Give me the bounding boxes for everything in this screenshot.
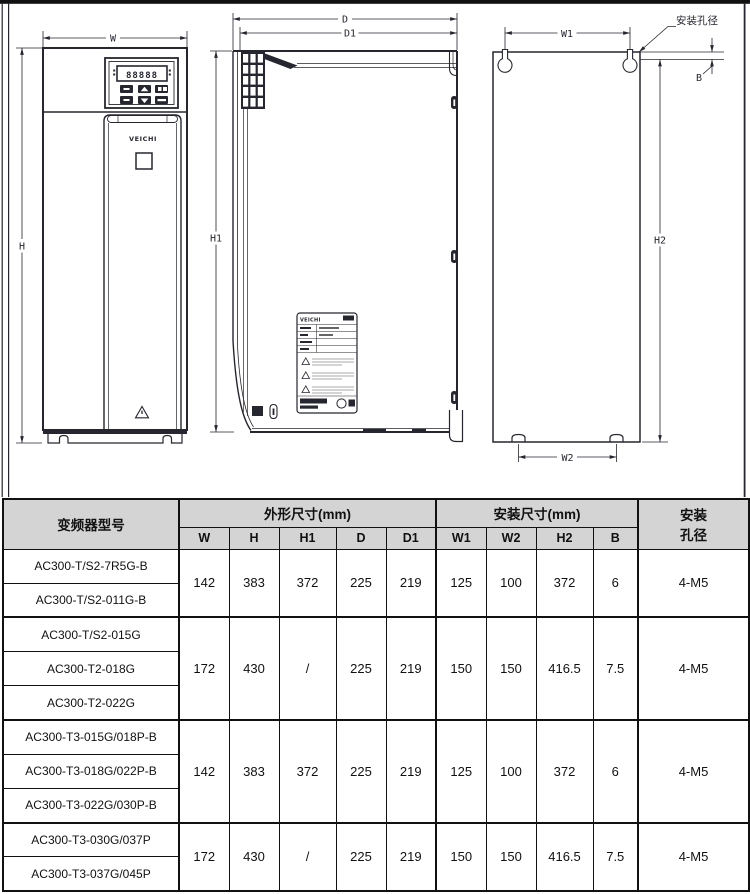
dim-cell: 150 (436, 617, 486, 720)
dim-cell: 372 (279, 549, 336, 617)
header-model: 变频器型号 (3, 499, 179, 549)
dim-cell: 416.5 (536, 617, 593, 720)
model-cell: AC300-T2-018G (3, 652, 179, 686)
header-outline-group: 外形尺寸(mm) (179, 499, 436, 527)
dim-cell: 430 (229, 617, 279, 720)
header-mount-group: 安装尺寸(mm) (436, 499, 638, 527)
dim-cell: / (279, 823, 336, 892)
model-cell: AC300-T3-022G/030P-B (3, 788, 179, 822)
dim-label-w1: W1 (561, 29, 573, 40)
header-col-h1: H1 (279, 527, 336, 549)
dim-cell: 142 (179, 720, 229, 823)
mounting-keyhole (623, 50, 637, 73)
dim-cell: 430 (229, 823, 279, 892)
dim-label-w: W (110, 34, 117, 45)
mounting-notch (512, 435, 525, 443)
dimension-drawings: W H 88888 (0, 0, 750, 497)
dimension-table: 变频器型号 外形尺寸(mm) 安装尺寸(mm) 安装 孔径 W H H1 D D… (2, 498, 750, 892)
model-cell: AC300-T3-015G/018P-B (3, 720, 179, 754)
header-col-d: D (336, 527, 386, 549)
dim-cell: 225 (336, 823, 386, 892)
dim-label-h: H (19, 242, 25, 253)
dim-cell: 225 (336, 617, 386, 720)
hole-cell: 4-M5 (638, 720, 749, 823)
mounting-notch (610, 435, 623, 443)
model-cell: AC300-T/S2-7R5G-B (3, 549, 179, 583)
dim-label-w2: W2 (561, 453, 573, 464)
dim-cell: 150 (436, 823, 486, 892)
dim-cell: 150 (486, 617, 536, 720)
dim-cell: 142 (179, 549, 229, 617)
dim-cell: 219 (386, 823, 436, 892)
dim-cell: 219 (386, 617, 436, 720)
dim-cell: 225 (336, 720, 386, 823)
hole-cell: 4-M5 (638, 549, 749, 617)
dim-cell: 383 (229, 549, 279, 617)
mounting-keyhole (498, 50, 512, 73)
header-col-b: B (593, 527, 638, 549)
keypad-panel: 88888 (105, 58, 178, 108)
nameplate-label: VEICHI (297, 313, 357, 413)
dim-label-d1: D1 (344, 29, 356, 40)
model-cell: AC300-T/S2-015G (3, 617, 179, 651)
vent-grille (241, 52, 298, 109)
dim-cell: 100 (486, 720, 536, 823)
header-col-d1: D1 (386, 527, 436, 549)
dim-label-d: D (342, 15, 348, 26)
dim-cell: 125 (436, 720, 486, 823)
dim-cell: 372 (279, 720, 336, 823)
mounting-hole-note: 安装孔径 (676, 14, 718, 27)
manual-page: W H 88888 (0, 0, 750, 894)
dim-cell: / (279, 617, 336, 720)
warning-triangle-icon (136, 407, 149, 418)
dim-cell: 172 (179, 617, 229, 720)
header-hole: 安装 孔径 (638, 499, 749, 549)
back-view-drawing: W1 安装孔径 B H2 W2 (493, 14, 724, 464)
dim-cell: 100 (486, 549, 536, 617)
brand-label: VEICHI (129, 135, 157, 143)
dim-cell: 172 (179, 823, 229, 892)
dim-cell: 416.5 (536, 823, 593, 892)
dim-cell: 372 (536, 720, 593, 823)
display-value: 88888 (126, 71, 158, 81)
dim-cell: 383 (229, 720, 279, 823)
header-col-w2: W2 (486, 527, 536, 549)
dim-cell: 6 (593, 549, 638, 617)
hole-cell: 4-M5 (638, 823, 749, 892)
dim-cell: 7.5 (593, 823, 638, 892)
header-col-h2: H2 (536, 527, 593, 549)
dim-cell: 7.5 (593, 617, 638, 720)
dim-cell: 150 (486, 823, 536, 892)
dim-cell: 219 (386, 720, 436, 823)
hole-cell: 4-M5 (638, 617, 749, 720)
dim-cell: 225 (336, 549, 386, 617)
dim-label-h1: H1 (210, 234, 222, 245)
model-cell: AC300-T2-022G (3, 686, 179, 720)
model-cell: AC300-T3-018G/022P-B (3, 754, 179, 788)
model-cell: AC300-T3-037G/045P (3, 857, 179, 891)
side-view-drawing: D D1 H1 (208, 13, 463, 442)
dim-label-h2: H2 (654, 236, 666, 247)
dim-cell: 219 (386, 549, 436, 617)
dim-cell: 125 (436, 549, 486, 617)
dim-label-b: B (696, 73, 702, 84)
front-view-drawing: W H 88888 (16, 31, 188, 443)
door-window (136, 153, 152, 169)
header-col-w1: W1 (436, 527, 486, 549)
page-frame (0, 0, 750, 497)
nameplate-brand: VEICHI (300, 318, 321, 324)
header-col-w: W (179, 527, 229, 549)
dim-cell: 6 (593, 720, 638, 823)
model-cell: AC300-T/S2-011G-B (3, 583, 179, 617)
header-col-h: H (229, 527, 279, 549)
dim-cell: 372 (536, 549, 593, 617)
model-cell: AC300-T3-030G/037P (3, 823, 179, 857)
